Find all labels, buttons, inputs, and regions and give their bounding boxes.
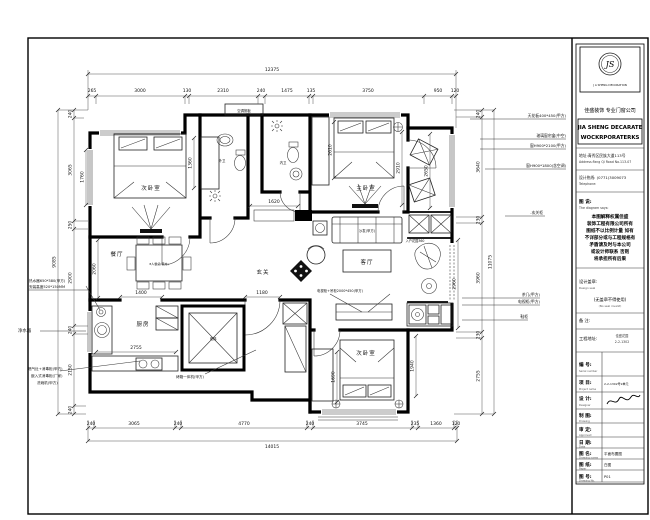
- ann-heater-1: 热水器650*380(甲方): [29, 278, 66, 283]
- dim: 3000: [134, 88, 146, 94]
- garden-plants: [415, 243, 441, 293]
- room-label-bedroom-br: 次卧室: [356, 349, 376, 357]
- dining-table-label: 8人餐桌(甲方): [149, 261, 168, 266]
- dim: 2910: [396, 162, 402, 174]
- laundry-appliances: [407, 303, 453, 326]
- dim: 2060: [92, 263, 98, 275]
- stove: [136, 358, 162, 370]
- garden-label: 入户花园360: [406, 238, 425, 243]
- dim: 3065: [68, 164, 74, 176]
- ann-ceiling: 天花板400*450(甲方): [528, 113, 567, 118]
- windows: [86, 111, 455, 420]
- dim-right-total: 11075: [488, 255, 494, 269]
- water-heater: [97, 308, 106, 317]
- ann-entry-cabinet: -玄关柜: [530, 210, 543, 215]
- dim: 3065: [128, 421, 140, 427]
- dim-top-total: 12375: [265, 67, 279, 73]
- dim: 265: [88, 88, 97, 94]
- seal-sub: Design seal: [579, 286, 595, 290]
- dim: 950: [434, 88, 443, 94]
- dim: 240: [87, 421, 96, 427]
- bath-outer-fixtures: [209, 134, 246, 202]
- dim: 230: [476, 331, 482, 340]
- remark-label: 备 注:: [579, 317, 590, 324]
- notes-line: 或设计师联系 否则: [591, 248, 630, 255]
- elevator-shaft: 电梯: [182, 306, 244, 370]
- dim: 1940: [410, 360, 416, 372]
- dim: 3960: [476, 272, 482, 284]
- dim: 1620: [268, 199, 280, 205]
- notes-paragraph: 本图解释权属佳盛 装饰工程有限公司所有 图纸不以比例计量 如有 不详部分或与工程…: [585, 213, 636, 262]
- ann-tea-table: 茶几(甲方): [522, 292, 541, 297]
- row-value: 2-2-1302号2单元: [604, 381, 629, 386]
- seal-warning-sub: (No seal invalid): [599, 304, 622, 308]
- dim: 120: [452, 421, 461, 427]
- dim: 2310: [217, 88, 229, 94]
- row-label: 制 图:: [579, 412, 592, 419]
- company-address-cn: 地址:青秀区民族大道113号: [579, 153, 626, 158]
- row-sub: Drawing: [579, 419, 590, 423]
- row-sub: Serial number: [579, 369, 598, 373]
- company-address-en: Address:Fang Qi Road No.113-07: [579, 160, 631, 164]
- row-sub: Paper: [579, 467, 587, 471]
- dim: 1400: [135, 290, 147, 296]
- dim: 2650: [424, 165, 430, 177]
- dim: 240: [306, 421, 315, 427]
- notes-title: 图 说:: [579, 198, 592, 205]
- dim: 3640: [476, 161, 482, 173]
- bath-inner-fixtures: [271, 120, 302, 180]
- row-sub: Date: [579, 445, 586, 449]
- row-label: 设 计:: [579, 395, 592, 402]
- notes-line: 图纸不以比例计量 如有: [586, 227, 634, 234]
- service-shafts: [283, 303, 307, 372]
- ac-shelf-label: 空调搁板: [237, 108, 251, 113]
- dim: 2755: [130, 345, 142, 351]
- ann-oven: 烤箱一体机(甲方): [176, 374, 205, 379]
- ann-window-2: 窗H900*1800(含空调): [526, 163, 566, 168]
- dim: 130: [183, 88, 192, 94]
- dim-top: 12375 265 3000 130 2310 240 1475 135 375…: [86, 67, 459, 128]
- dim: 1360: [188, 157, 194, 169]
- living-furniture: [254, 210, 402, 282]
- dim: 1690: [331, 371, 337, 383]
- dim-bottom-total: 14015: [265, 444, 279, 450]
- ac-shelf: 空调搁板: [225, 104, 263, 115]
- ann-dishwasher-note: 洗碗机(甲方): [37, 380, 58, 385]
- row-sub: Drawing No.: [579, 479, 595, 483]
- dim: 2900: [68, 272, 74, 284]
- ann-shoe-cabinet: 鞋柜: [520, 314, 528, 319]
- dim: 1360: [430, 421, 442, 427]
- row-label: 审 定:: [579, 426, 592, 433]
- site-value-1: 佳盛花园: [616, 333, 629, 338]
- elevator-label: 电梯: [210, 336, 217, 341]
- dim: 240: [68, 326, 74, 335]
- ann-stove-note: 燃气灶+消毒柜(甲方): [28, 366, 63, 371]
- notes-line: 将承担所有后果: [594, 255, 627, 262]
- designer-signature: [607, 395, 640, 404]
- ann-water-purifier: 净水器: [18, 327, 32, 334]
- notes-line: 装饰工程有限公司所有: [586, 220, 633, 227]
- master-wardrobe: [312, 117, 329, 185]
- row-sub: Project name: [579, 387, 596, 391]
- closet-tl: [201, 137, 219, 189]
- exterior-walls: [90, 115, 452, 412]
- wardrobe-br: [312, 349, 333, 401]
- room-label-bath-inner: 内卫: [280, 160, 287, 165]
- row-sub: Drawing name: [579, 456, 598, 460]
- dim-bottom: 14015 240 3065 240 4770 240 3745 235 136…: [86, 420, 460, 450]
- row-sub: Approved: [579, 433, 592, 437]
- dim: 250: [68, 221, 74, 230]
- dim: 1475: [281, 88, 293, 94]
- interior-walls: [90, 115, 452, 412]
- row-value: 平面布置图: [604, 451, 622, 456]
- dim-right: 11075 240 3640 230 3960 230 2755: [454, 108, 496, 416]
- dim-left-total: 9085: [52, 256, 58, 268]
- floorplan-sheet: 空调搁板: [0, 0, 650, 520]
- dim: 135: [307, 88, 316, 94]
- ann-window-1: 窗H900*2100(甲方): [530, 143, 567, 148]
- balcony-furniture: [409, 139, 438, 202]
- service-platform: [409, 215, 451, 233]
- row-label: 项 目:: [579, 379, 592, 386]
- company-tel-cn: 设计热线: (0771)3009073: [579, 175, 627, 180]
- room-label-master: 主卧室: [356, 184, 376, 192]
- titleblock: JS J A SHENG DECORATION 佳盛装饰 专业门窗公司 JIA …: [576, 44, 644, 484]
- dim: 3745: [356, 421, 368, 427]
- dim: 240: [68, 110, 74, 119]
- company-tel-en: Telephone:: [578, 182, 596, 186]
- row-label: 编 号:: [579, 361, 592, 368]
- dim: 240: [257, 88, 266, 94]
- row-value: 白图: [604, 462, 612, 467]
- seal-warning: (无盖章不得使用): [594, 296, 627, 303]
- annotations: 天花板400*450(甲方) 玻璃窗帘盒(中空) 窗H900*2100(甲方) …: [18, 113, 567, 385]
- dim: 240: [476, 110, 482, 119]
- room-label-bedroom-tl: 次卧室: [141, 184, 161, 192]
- titleblock-table: 编 号: Serial number 项 目: Project name 2-2…: [576, 352, 644, 483]
- room-label-entry: 玄关: [256, 268, 269, 276]
- dim: 3750: [362, 88, 374, 94]
- entry-tile: [290, 260, 312, 282]
- sofa-label: 沙发(甲方): [359, 228, 376, 233]
- row-sub: Designer: [579, 403, 592, 407]
- ann-sterilizer-note: 嵌入式消毒柜(厂家): [31, 373, 63, 378]
- notes-line: 本图解释权属佳盛: [591, 213, 629, 220]
- dim: 230: [476, 216, 482, 225]
- dim: 235: [411, 421, 420, 427]
- dim: 1180: [256, 290, 268, 296]
- dim: 240: [68, 406, 74, 415]
- master-furniture: [312, 117, 403, 208]
- site-label: 工程地址:: [579, 335, 597, 342]
- dim: 120: [451, 88, 460, 94]
- ann-tv-unit: 电视柜+吊柜2000*450(甲方): [317, 288, 364, 293]
- dim: 4770: [238, 421, 250, 427]
- floorplan-drawing: 空调搁板: [0, 0, 650, 520]
- company-name-en2: WOCKRPORATERKS: [581, 135, 640, 141]
- kitchen-furniture: [92, 306, 178, 371]
- notes-line: 不详部分或与工程规格有: [585, 234, 636, 241]
- row-value: P01: [604, 475, 611, 479]
- notes-subtitle: The diagram says:: [578, 206, 608, 210]
- dim: 240: [174, 421, 183, 427]
- dim: 2960: [452, 278, 458, 290]
- room-label-living: 客厅: [360, 258, 373, 266]
- ann-curtain-box: 玻璃窗帘盒(中空): [536, 133, 566, 138]
- room-label-bath-outer: 外卫: [219, 158, 226, 163]
- dim: 2755: [476, 370, 482, 382]
- dim: 1760: [80, 171, 86, 183]
- company-name-cn: 佳盛装饰 专业门窗公司: [584, 107, 636, 114]
- ann-heater-2: 安装高度520*150MM: [29, 284, 65, 289]
- tv-wall: [295, 210, 312, 221]
- room-label-kitchen: 厨房: [136, 320, 149, 328]
- company-name-en1: JIA SHENG DECARATE: [577, 125, 643, 131]
- logo-initials: JS: [604, 60, 615, 69]
- room-label-dining: 餐厅: [110, 250, 123, 258]
- sheet-border: [28, 38, 648, 514]
- logo-caption: J A SHENG DECORATION: [592, 83, 627, 87]
- dim: 2610: [328, 144, 334, 156]
- ann-tv-cabinet: 电视柜(甲方): [518, 299, 540, 304]
- notes-line: 矛盾请及时与本公司: [588, 241, 631, 248]
- site-value-2: 2-2-1302: [615, 340, 629, 344]
- seal-label: 设计盖章:: [579, 278, 597, 285]
